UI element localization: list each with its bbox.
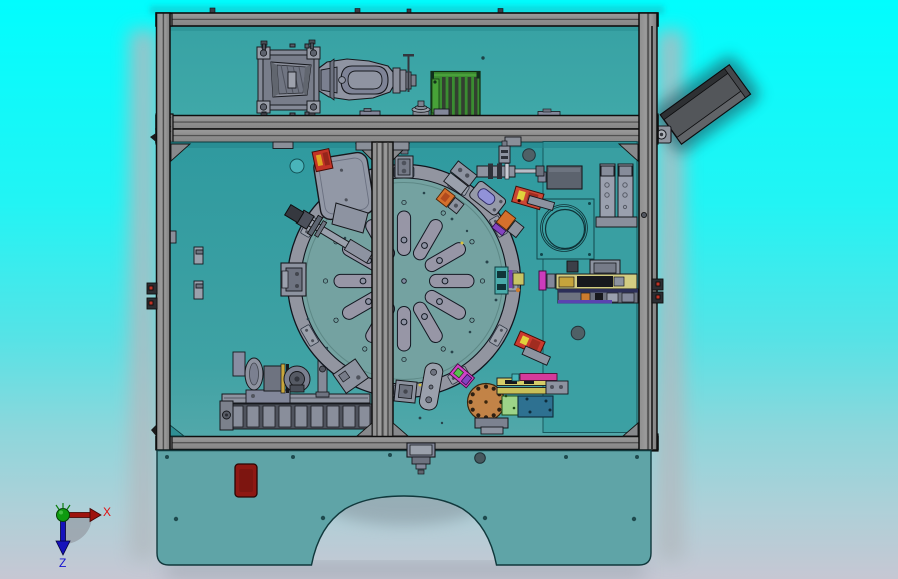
svg-text:X: X <box>103 505 111 519</box>
svg-text:Z: Z <box>59 556 66 570</box>
